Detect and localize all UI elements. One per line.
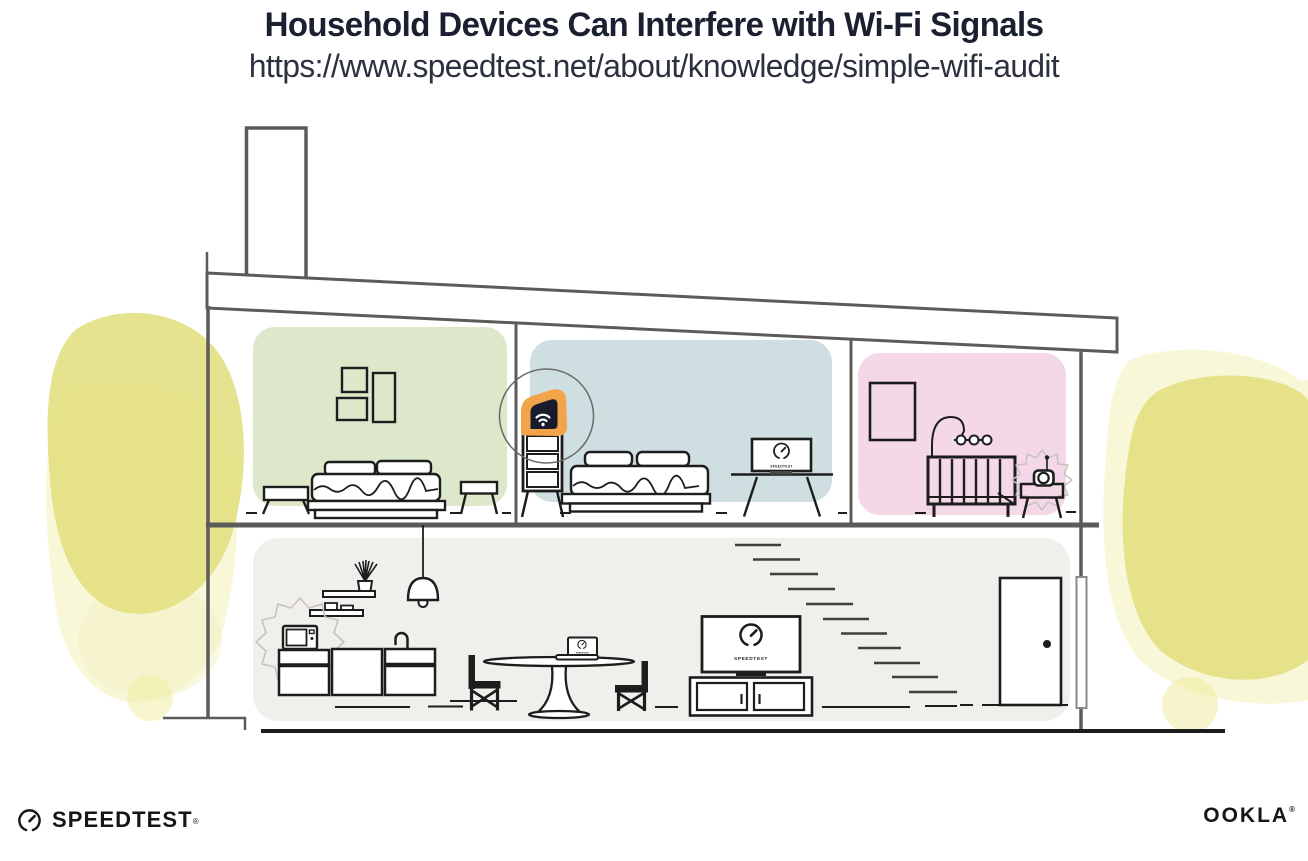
desk-monitor: SPEEDTEST bbox=[752, 439, 811, 475]
speedtest-gauge-icon bbox=[16, 807, 43, 834]
stool-left bbox=[263, 487, 309, 514]
ookla-wordmark: OOKLA bbox=[1203, 804, 1289, 827]
registered-mark: ® bbox=[193, 818, 199, 826]
house-cutaway-illustration: SPEEDTEST bbox=[0, 0, 1308, 861]
door-knob bbox=[1043, 640, 1051, 648]
left-yard-line bbox=[163, 718, 245, 730]
ookla-logo: OOKLA® bbox=[1203, 804, 1297, 828]
tv-stand bbox=[690, 678, 812, 716]
chimney bbox=[247, 128, 307, 282]
speedtest-logo: SPEEDTEST® bbox=[16, 803, 199, 837]
wifi-router-icon bbox=[524, 392, 565, 435]
downspout bbox=[1077, 577, 1087, 708]
foliage-left bbox=[46, 313, 244, 721]
tv-screen-label: SPEEDTEST bbox=[734, 656, 768, 662]
bed bbox=[562, 452, 710, 512]
tv-area: SPEEDTEST bbox=[690, 617, 812, 716]
bed bbox=[308, 461, 445, 518]
router-shelf bbox=[522, 431, 563, 517]
tv: SPEEDTEST bbox=[702, 617, 800, 677]
kitchen-cabinets bbox=[279, 649, 435, 695]
monitor-screen-label: SPEEDTEST bbox=[770, 465, 793, 469]
foliage-right bbox=[1103, 350, 1308, 733]
speedtest-wordmark: SPEEDTEST bbox=[52, 807, 193, 833]
microwave bbox=[283, 626, 317, 649]
registered-mark: ® bbox=[1289, 805, 1297, 814]
entry-door bbox=[1000, 578, 1061, 705]
